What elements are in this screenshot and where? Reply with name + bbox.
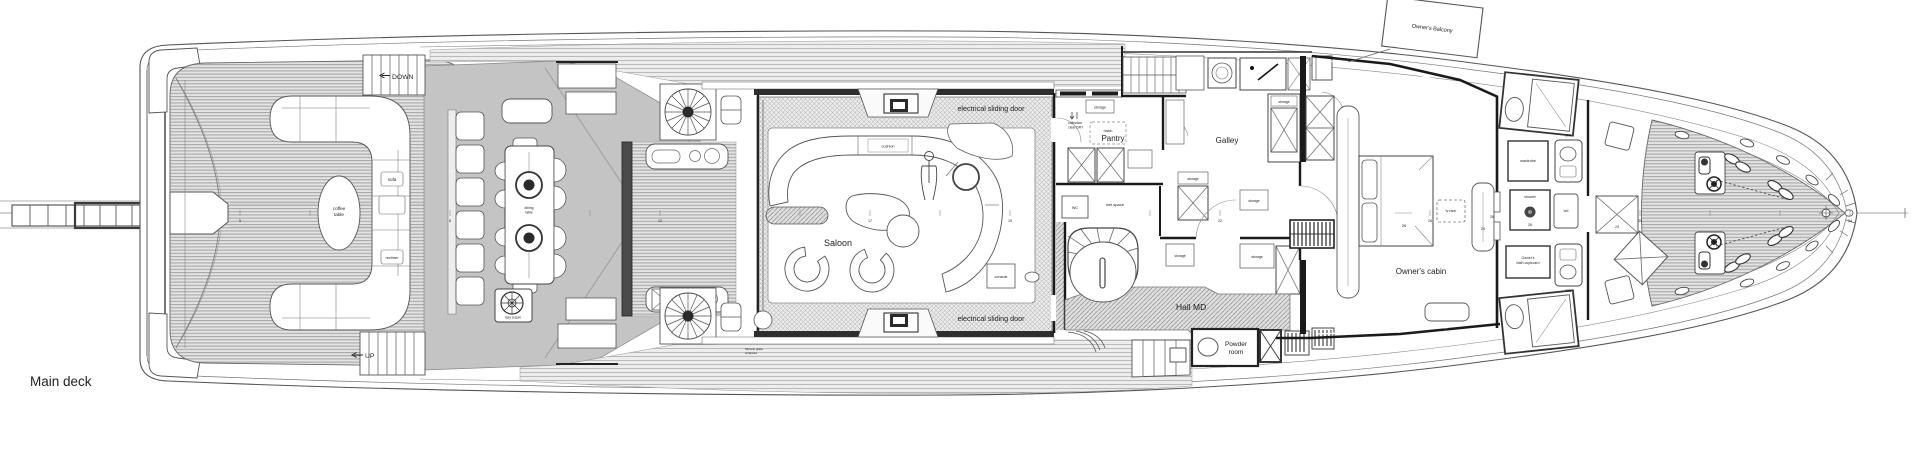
svg-text:Pantry: Pantry bbox=[1101, 134, 1124, 143]
svg-text:Owner's cabin: Owner's cabin bbox=[1396, 267, 1446, 276]
svg-text:8: 8 bbox=[449, 219, 451, 223]
svg-text:Owner's: Owner's bbox=[1521, 256, 1534, 260]
svg-text:30B: 30B bbox=[1565, 289, 1572, 293]
svg-text:storage: storage bbox=[1251, 255, 1262, 259]
svg-text:34: 34 bbox=[1848, 219, 1852, 223]
svg-text:Hall MD: Hall MD bbox=[1176, 302, 1206, 312]
svg-text:dining: dining bbox=[524, 206, 533, 210]
svg-text:29: 29 bbox=[1481, 227, 1485, 231]
svg-text:collection: collection bbox=[1068, 121, 1082, 125]
svg-text:Main deck: Main deck bbox=[30, 374, 92, 389]
svg-text:recliner: recliner bbox=[385, 255, 399, 260]
svg-text:console: console bbox=[994, 275, 1007, 279]
svg-text:24: 24 bbox=[1615, 225, 1619, 229]
svg-text:cushion: cushion bbox=[881, 145, 894, 149]
svg-text:storage: storage bbox=[1248, 199, 1259, 203]
svg-text:electrical sliding door: electrical sliding door bbox=[957, 104, 1025, 113]
svg-text:room: room bbox=[1229, 349, 1244, 356]
svg-text:tv riser: tv riser bbox=[1446, 209, 1458, 213]
svg-text:storage: storage bbox=[1278, 100, 1289, 104]
svg-text:bath cupboard: bath cupboard bbox=[1517, 261, 1540, 265]
svg-text:19: 19 bbox=[1008, 219, 1012, 223]
svg-text:clear DRT: clear DRT bbox=[1068, 126, 1083, 130]
svg-text:26: 26 bbox=[1402, 223, 1407, 228]
svg-text:DOWN: DOWN bbox=[392, 74, 414, 81]
svg-text:electrical sliding door: electrical sliding door bbox=[957, 314, 1025, 323]
svg-text:storage: storage bbox=[1174, 254, 1185, 258]
svg-text:coffee: coffee bbox=[333, 206, 346, 211]
svg-text:sculpture: sculpture bbox=[745, 351, 758, 355]
svg-text:UP: UP bbox=[365, 353, 375, 360]
svg-text:wardrobe: wardrobe bbox=[1520, 159, 1536, 163]
svg-text:table: table bbox=[525, 211, 532, 215]
svg-text:Powder: Powder bbox=[1225, 341, 1248, 348]
svg-text:30: 30 bbox=[1638, 219, 1642, 223]
svg-text:wet space: wet space bbox=[1106, 202, 1125, 207]
svg-text:Saloon: Saloon bbox=[824, 238, 852, 248]
svg-text:17: 17 bbox=[868, 219, 872, 223]
svg-text:lazy susan: lazy susan bbox=[505, 316, 521, 320]
svg-text:26: 26 bbox=[1528, 223, 1532, 227]
svg-text:table: table bbox=[334, 212, 344, 217]
svg-text:sofa: sofa bbox=[388, 177, 397, 182]
svg-text:22: 22 bbox=[1218, 219, 1222, 223]
svg-text:WC: WC bbox=[1072, 206, 1079, 210]
svg-text:b/d: b/d bbox=[1564, 209, 1569, 213]
svg-text:26: 26 bbox=[1490, 215, 1494, 219]
svg-text:storage: storage bbox=[1187, 177, 1198, 181]
svg-text:shower: shower bbox=[1524, 195, 1536, 199]
svg-text:12: 12 bbox=[658, 219, 662, 223]
svg-text:hatch: hatch bbox=[1104, 129, 1113, 133]
svg-text:26: 26 bbox=[1428, 219, 1432, 223]
svg-text:storage: storage bbox=[1094, 106, 1106, 110]
svg-text:5: 5 bbox=[239, 219, 241, 223]
svg-text:Galley: Galley bbox=[1216, 136, 1239, 145]
svg-text:30A: 30A bbox=[1565, 134, 1572, 138]
